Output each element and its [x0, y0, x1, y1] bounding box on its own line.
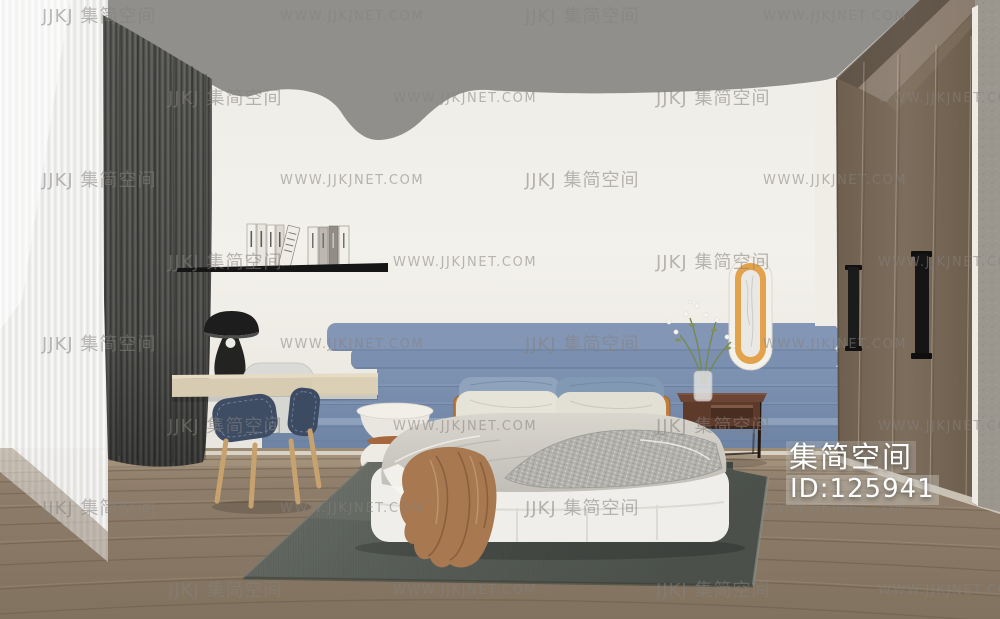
scene-art [0, 0, 1000, 619]
bedroom-render: JJKJ 集简空间WWW.JJKJNET.COMJJKJ 集简空间WWW.JJK… [0, 0, 1000, 619]
wall-corner-trim [815, 78, 836, 326]
wardrobe [836, 0, 1000, 514]
concrete-pillar [975, 0, 1000, 512]
brand-watermark: 集简空间 ID:125941 [786, 441, 939, 505]
wall-mirror [729, 257, 772, 370]
pillar-trim [972, 5, 978, 506]
brand-name: 集简空间 [786, 441, 916, 473]
sheer-curtain [0, 0, 108, 562]
brand-id: ID:125941 [786, 475, 939, 504]
